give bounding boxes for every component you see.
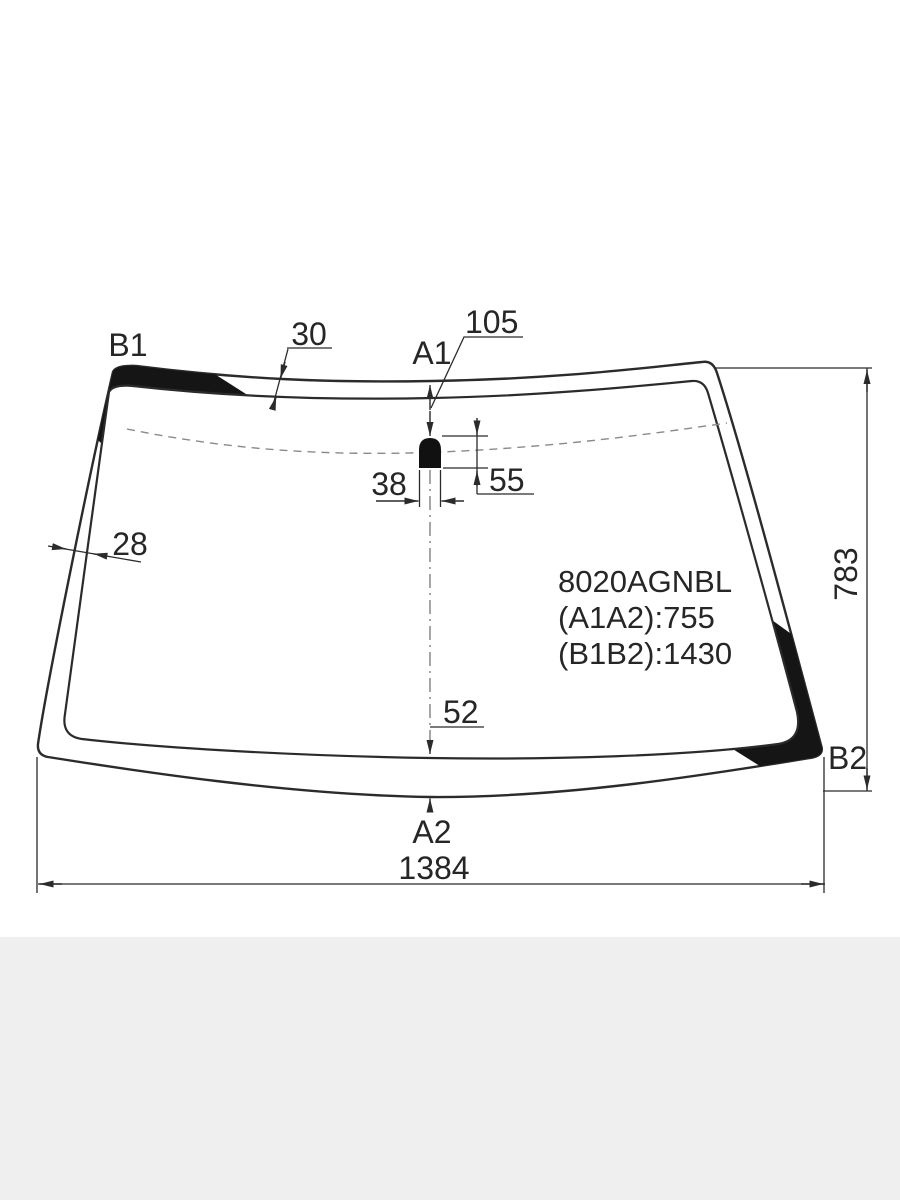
dim-30-value: 30 <box>291 316 327 352</box>
point-label-b1: B1 <box>108 327 147 363</box>
spec-b1b2: (B1B2):1430 <box>558 636 732 671</box>
dim-1384-value: 1384 <box>398 850 469 886</box>
spec-a1a2: (A1A2):755 <box>558 600 715 635</box>
footer-background-band <box>0 937 900 1200</box>
point-label-a1: A1 <box>412 335 451 371</box>
windshield-diagram-page: 105 A1 B1 30 55 <box>0 0 900 1200</box>
dim-783-value: 783 <box>828 547 864 600</box>
dim-105-value: 105 <box>465 304 518 340</box>
dim-52-value: 52 <box>443 694 479 730</box>
windshield-drawing: 105 A1 B1 30 55 <box>0 0 900 940</box>
point-label-a2: A2 <box>412 814 451 850</box>
part-number: 8020AGNBL <box>558 564 732 599</box>
dim-38-value: 38 <box>371 466 407 502</box>
part-info-block: 8020AGNBL (A1A2):755 (B1B2):1430 <box>558 564 732 671</box>
dim-55-value: 55 <box>489 462 525 498</box>
dim-28-value: 28 <box>112 526 148 562</box>
point-label-b2: B2 <box>828 740 867 776</box>
mirror-mount-sensor <box>419 438 441 468</box>
